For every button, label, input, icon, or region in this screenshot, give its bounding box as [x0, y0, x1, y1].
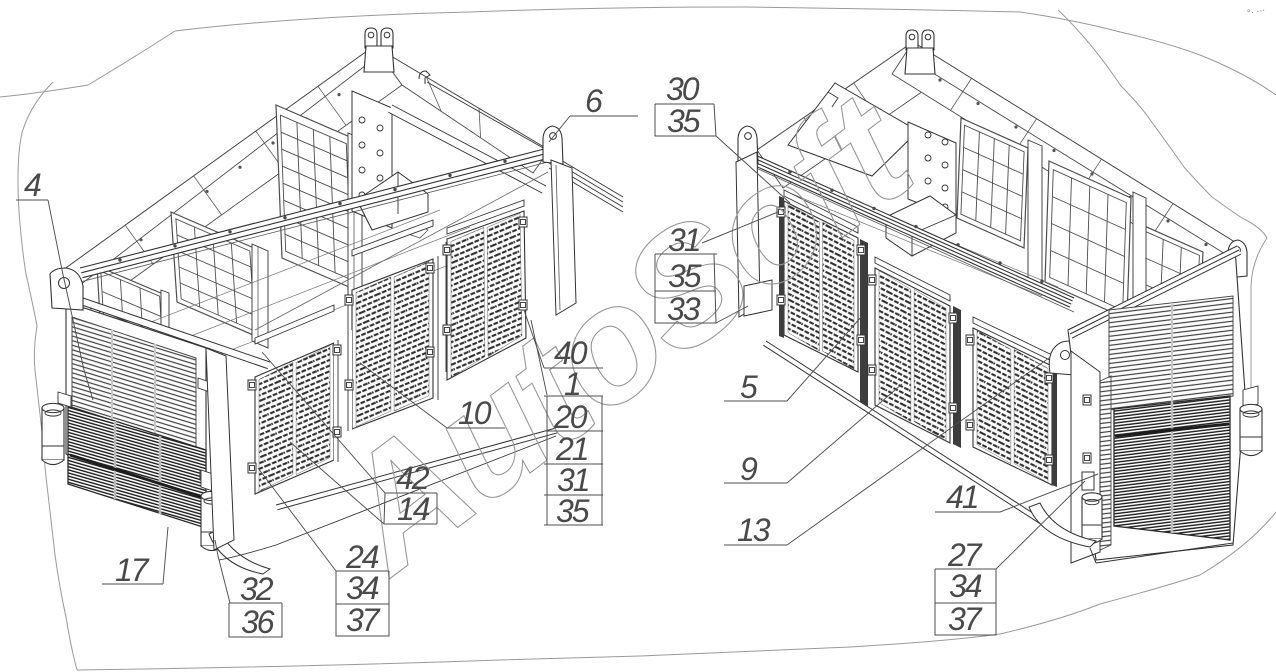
svg-text:5: 5 [740, 369, 758, 405]
svg-text:4: 4 [24, 167, 41, 203]
svg-text:10: 10 [458, 395, 492, 431]
svg-text:20: 20 [553, 399, 588, 435]
svg-text:13: 13 [737, 512, 771, 548]
svg-text:35: 35 [556, 493, 590, 529]
svg-text:31: 31 [668, 222, 700, 258]
svg-text:9: 9 [740, 451, 758, 487]
svg-text:30: 30 [666, 71, 700, 107]
svg-text:36: 36 [241, 604, 275, 640]
svg-text:34: 34 [346, 570, 379, 606]
svg-text:14: 14 [397, 491, 430, 527]
svg-text:34: 34 [949, 568, 982, 604]
svg-text:1: 1 [564, 366, 580, 402]
svg-text:6: 6 [585, 83, 603, 119]
svg-text:35: 35 [667, 103, 701, 139]
svg-text:41: 41 [946, 479, 978, 515]
svg-text:35: 35 [668, 258, 702, 294]
svg-text:33: 33 [667, 291, 701, 327]
svg-text:32: 32 [240, 571, 274, 607]
svg-text:37: 37 [346, 602, 381, 638]
svg-text:37: 37 [948, 601, 983, 637]
svg-text:17: 17 [115, 552, 150, 588]
